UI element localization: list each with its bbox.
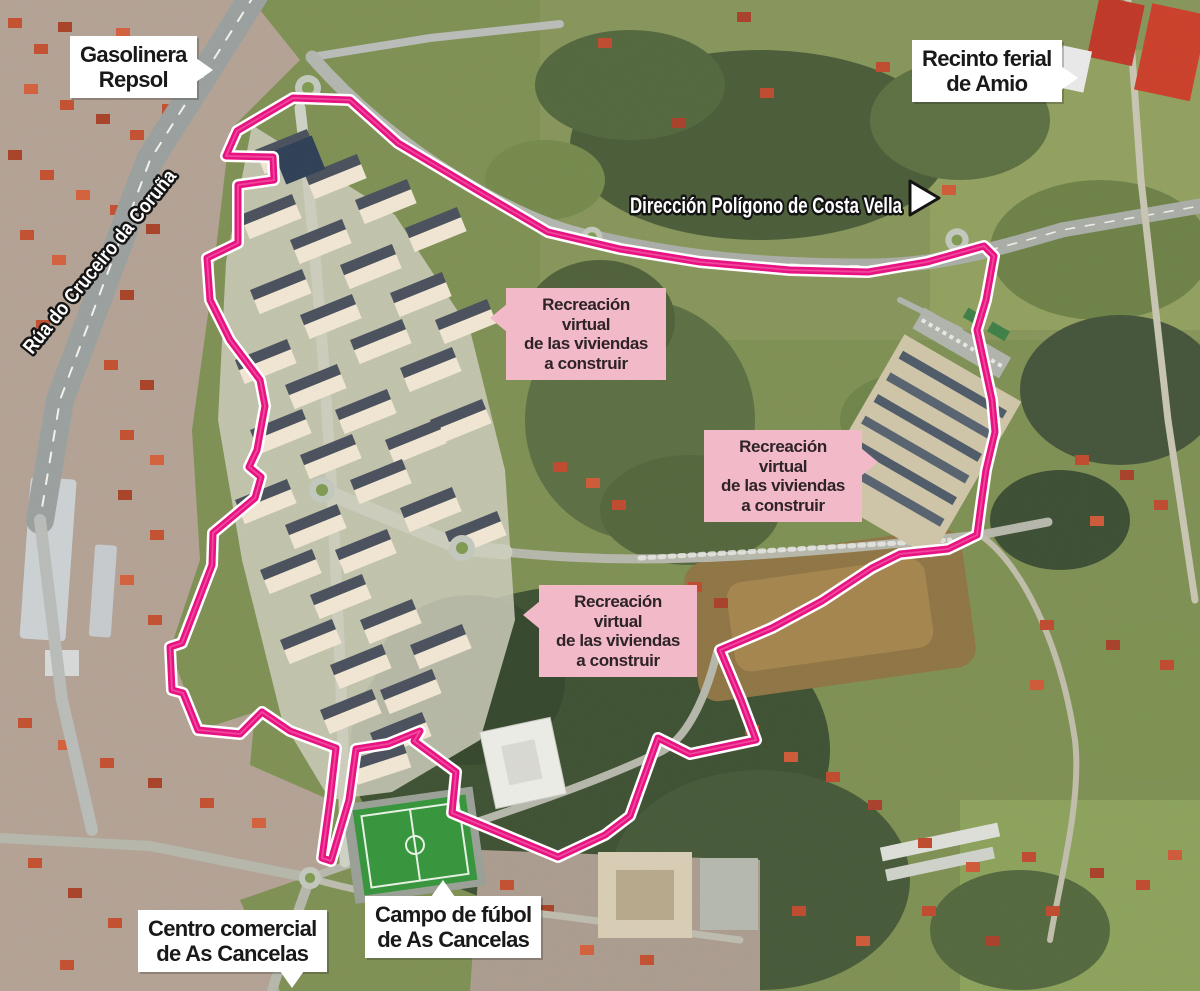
note-recreacion-virtual-1: Recreación virtual de las viviendas a co… [506, 288, 666, 380]
direccion-costa-vella-label: Dirección Polígono de Costa Vella [630, 193, 903, 218]
callout-line: Gasolinera [80, 42, 187, 67]
callout-line: Repsol [80, 67, 187, 92]
note-recreacion-virtual-3: Recreación virtual de las viviendas a co… [539, 585, 697, 677]
arrow-right-icon [196, 58, 213, 82]
callout-gasolinera-repsol: Gasolinera Repsol [70, 36, 197, 98]
note-line: a construir [515, 354, 657, 374]
note-line: de las viviendas [548, 631, 688, 651]
aerial-map: Dirección Polígono de Costa Vella Rúa do… [0, 0, 1200, 991]
arrow-down-icon [280, 971, 304, 988]
note-line: virtual [548, 612, 688, 632]
callout-line: Recinto ferial [922, 46, 1052, 71]
callout-centro-comercial: Centro comercial de As Cancelas [138, 910, 327, 972]
arrow-left-icon [523, 601, 540, 629]
note-line: de las viviendas [713, 476, 853, 496]
note-line: virtual [515, 315, 657, 335]
arrow-left-icon [490, 304, 507, 332]
callout-line: de As Cancelas [375, 927, 531, 952]
callout-recinto-ferial: Recinto ferial de Amio [912, 40, 1062, 102]
arrow-right-icon [1061, 66, 1078, 90]
note-line: a construir [713, 496, 853, 516]
callout-line: Centro comercial [148, 916, 317, 941]
arrow-right-icon [861, 448, 878, 476]
callout-line: Campo de fúbol [375, 902, 531, 927]
arrow-up-icon [431, 880, 455, 897]
callout-line: de As Cancelas [148, 941, 317, 966]
note-line: Recreación [515, 295, 657, 315]
note-line: Recreación [713, 437, 853, 457]
note-line: de las viviendas [515, 334, 657, 354]
note-recreacion-virtual-2: Recreación virtual de las viviendas a co… [704, 430, 862, 522]
satellite-base-image: Dirección Polígono de Costa Vella Rúa do… [0, 0, 1200, 991]
note-line: a construir [548, 651, 688, 671]
note-line: virtual [713, 457, 853, 477]
callout-line: de Amio [922, 71, 1052, 96]
note-line: Recreación [548, 592, 688, 612]
callout-campo-futbol: Campo de fúbol de As Cancelas [365, 896, 541, 958]
